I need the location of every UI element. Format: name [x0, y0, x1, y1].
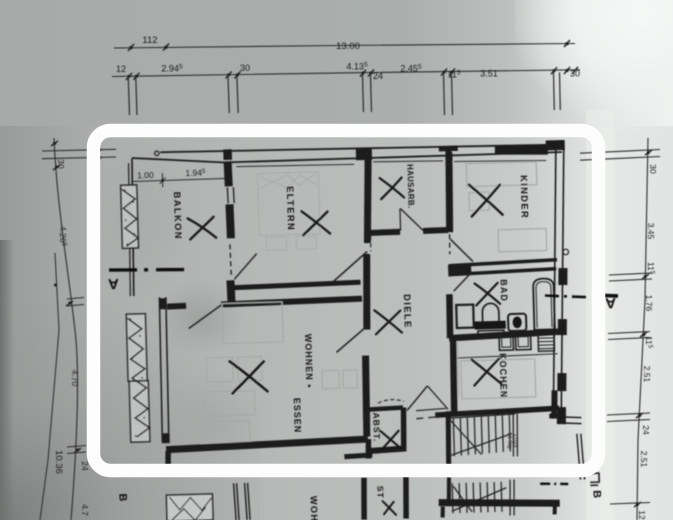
svg-text:ST: ST	[375, 486, 385, 499]
svg-text:ELTERN: ELTERN	[285, 186, 296, 231]
svg-text:BALKON: BALKON	[172, 192, 183, 240]
svg-text:12: 12	[637, 510, 647, 520]
svg-text:30: 30	[56, 159, 66, 169]
svg-text:30: 30	[570, 69, 580, 79]
svg-text:12: 12	[116, 64, 126, 74]
svg-text:24: 24	[80, 461, 90, 471]
svg-text:4.70: 4.70	[70, 370, 80, 387]
svg-text:KINDER: KINDER	[519, 175, 530, 219]
svg-text:A: A	[605, 294, 616, 311]
svg-text:WOHNEN •: WOHNEN •	[303, 334, 315, 389]
svg-text:4.7: 4.7	[80, 504, 90, 516]
svg-text:ABST.: ABST.	[371, 412, 382, 442]
svg-text:24: 24	[641, 425, 651, 435]
svg-text:10.36: 10.36	[53, 450, 64, 474]
svg-text:1.76: 1.76	[644, 295, 654, 312]
svg-text:112: 112	[142, 35, 157, 46]
svg-text:BAD: BAD	[498, 279, 509, 302]
svg-text:WOH: WOH	[308, 496, 319, 520]
svg-text:A: A	[108, 275, 119, 292]
svg-text:HAUSARB.: HAUSARB.	[405, 164, 415, 209]
svg-text:B: B	[116, 493, 128, 501]
svg-text:2.51: 2.51	[639, 451, 649, 468]
svg-text:3.45: 3.45	[646, 223, 656, 240]
svg-text:3.51: 3.51	[480, 69, 498, 79]
svg-text:16 Stg: 16 Stg	[506, 433, 512, 449]
svg-text:24: 24	[373, 71, 383, 81]
svg-text:ESSEN: ESSEN	[292, 398, 303, 434]
svg-text:2.51: 2.51	[642, 366, 652, 383]
svg-text:30: 30	[240, 63, 250, 73]
svg-text:30: 30	[648, 164, 658, 174]
svg-text:1.00: 1.00	[137, 170, 154, 180]
svg-text:13.00: 13.00	[336, 41, 360, 52]
svg-text:17/25: 17/25	[512, 433, 518, 447]
svg-text:DIELE: DIELE	[402, 294, 413, 329]
svg-text:B: B	[590, 490, 602, 498]
